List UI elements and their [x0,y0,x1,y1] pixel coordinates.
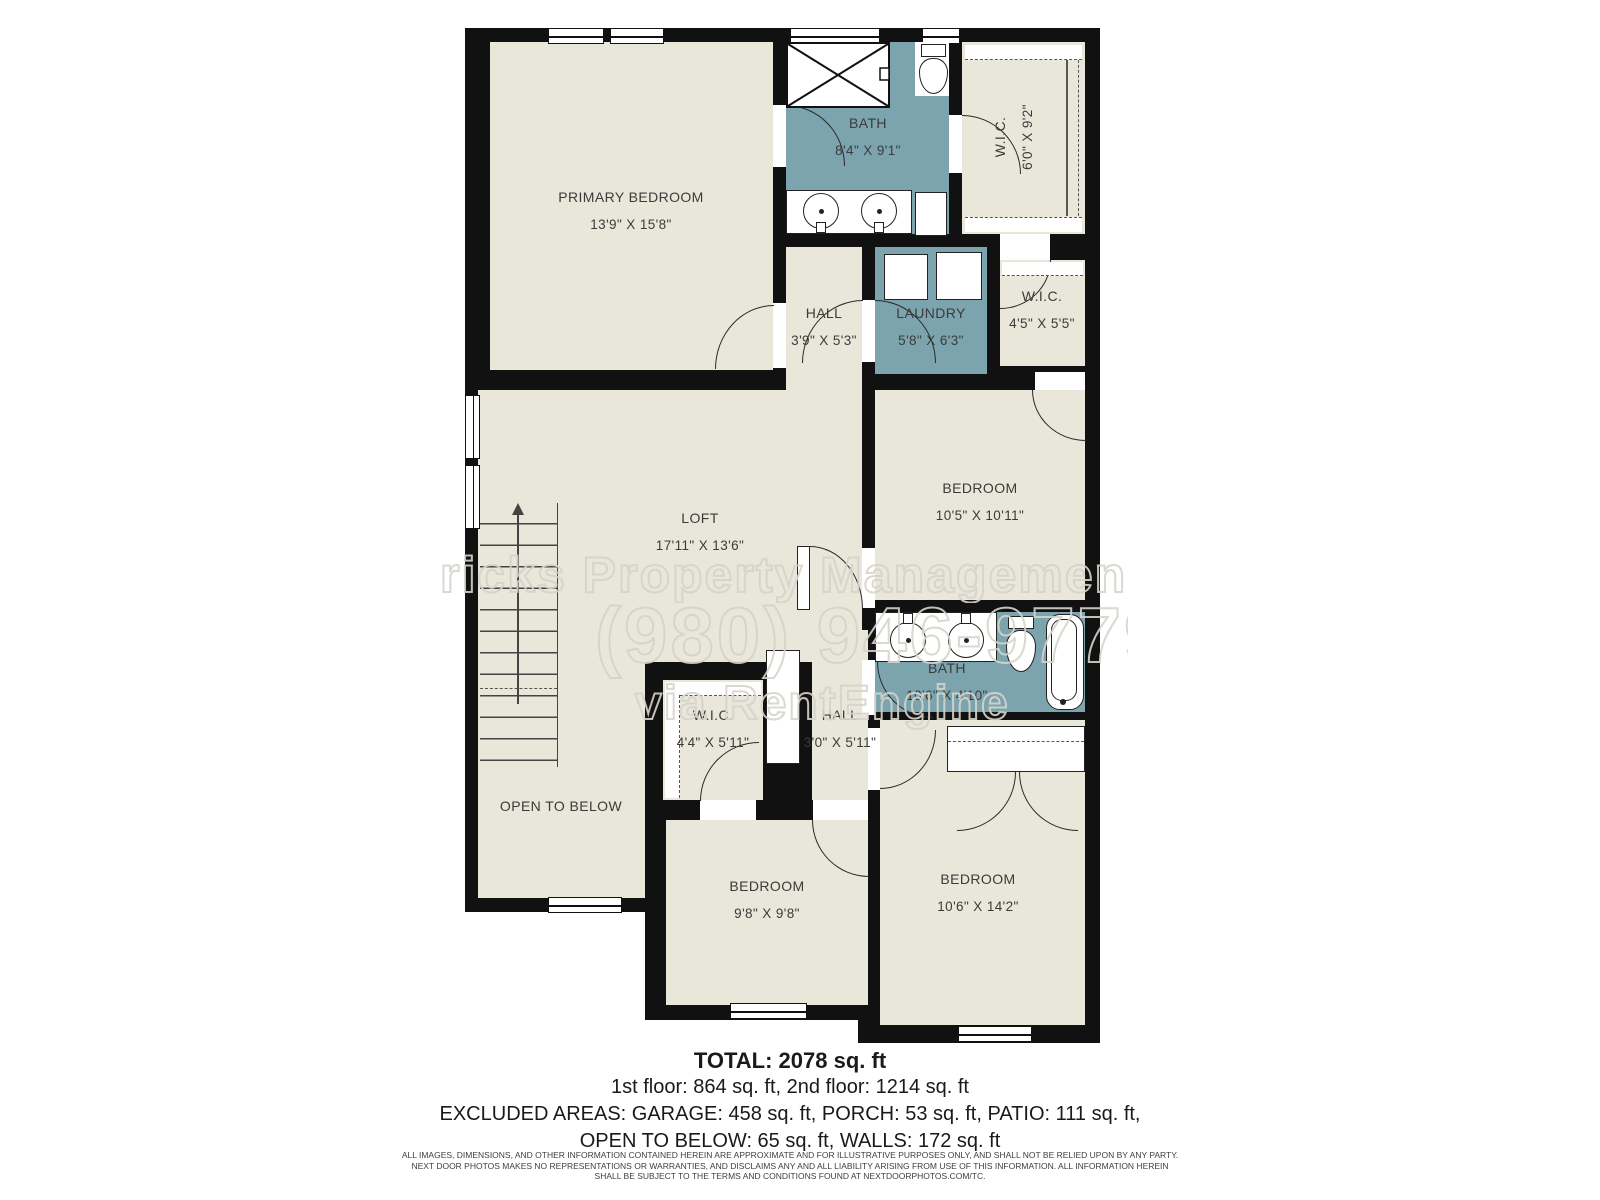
label-wic-primary: W.I.C.6'0" X 9'2" [987,67,1041,207]
window-bottom-3 [958,1026,1032,1042]
door-gap-bath-upper [773,105,786,167]
door-gap-wic-2 [1000,234,1050,260]
wic-primary-shelf-top [965,45,1082,60]
door-gap-bedroom-bc [813,800,868,820]
door-gap-bedroom-mid-closet [1035,372,1085,390]
label-primary-bedroom: PRIMARY BEDROOM13'9" X 15'8" [519,184,743,238]
faucet-icon-upper-2 [874,222,884,233]
label-bath-upper: BATH8'4" X 9'1" [798,110,938,164]
label-open-to-below: OPEN TO BELOW [481,793,641,820]
window-left-2 [465,465,480,529]
stair-arrow-head [512,503,524,515]
watermark-line-2: (980) 946-9779 [595,590,1128,681]
label-bedroom-bc: BEDROOM9'8" X 9'8" [687,873,847,927]
watermark-line-3: via RentEngine [635,676,1010,731]
window-bottom-2 [730,1003,807,1019]
toilet-upper-tank-icon [921,44,946,57]
excluded-areas-text-1: EXCLUDED AREAS: GARAGE: 458 sq. ft, PORC… [240,1101,1340,1128]
window-left-1 [465,395,480,459]
disclaimer-line-2: NEXT DOOR PHOTOS MAKES NO REPRESENTATION… [240,1161,1340,1172]
door-gap-wic-3 [700,800,756,820]
total-area-text: TOTAL: 2078 sq. ft [240,1048,1340,1074]
disclaimer: ALL IMAGES, DIMENSIONS, AND OTHER INFORM… [240,1150,1340,1182]
faucet-icon-upper-1 [816,222,826,233]
door-gap-wic-primary [949,115,962,173]
disclaimer-line-3: SHALL BE SUBJECT TO THE TERMS AND CONDIT… [240,1171,1340,1182]
window-top-1 [548,28,604,44]
label-wic-2: W.I.C.4'5" X 5'5" [972,283,1112,337]
wic-primary-shelf-right [1076,60,1079,216]
washer-icon [884,254,928,300]
wic-primary-shelf-bottom [965,217,1082,232]
floor-plan-page: PRIMARY BEDROOM13'9" X 15'8" BATH8'4" X … [0,0,1600,1200]
wic-primary-rod [1066,60,1068,216]
label-bedroom-br: BEDROOM10'6" X 14'2" [898,866,1058,920]
shower-icon [786,42,890,108]
floors-area-text: 1st floor: 864 sq. ft, 2nd floor: 1214 s… [240,1074,1340,1101]
disclaimer-line-1: ALL IMAGES, DIMENSIONS, AND OTHER INFORM… [240,1150,1340,1161]
window-bottom-1 [548,897,622,913]
area-summary: TOTAL: 2078 sq. ft 1st floor: 864 sq. ft… [240,1048,1340,1155]
label-bedroom-mid: BEDROOM10'5" X 10'11" [900,475,1060,529]
wic-2-shelf [1002,262,1083,276]
linen-closet [915,192,947,236]
watermark: ricks Property Managemen (980) 946-9779 … [440,538,1128,750]
window-top-2 [610,28,664,44]
